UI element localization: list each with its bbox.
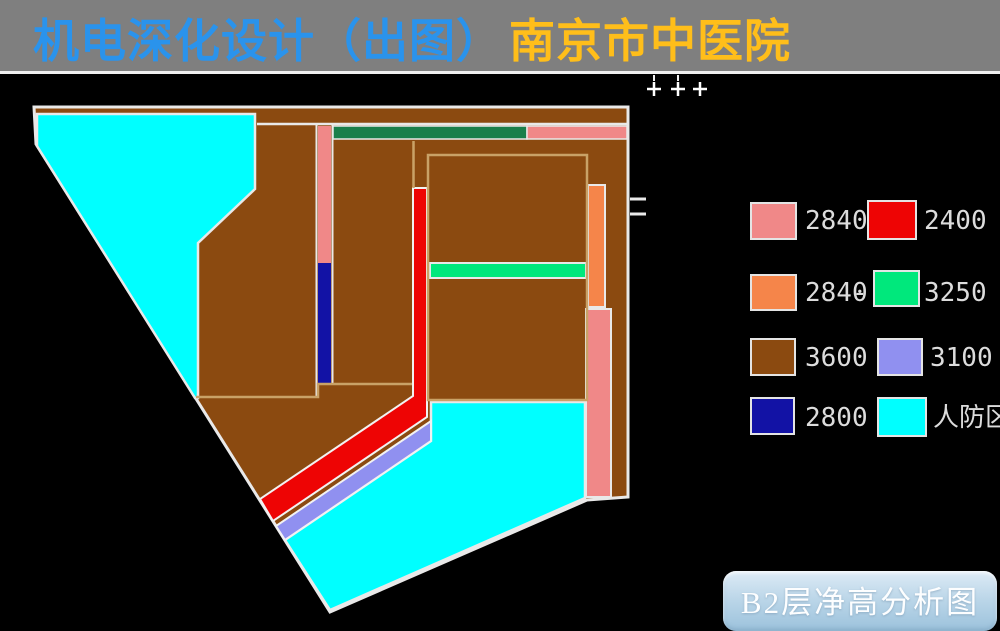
plus-marks [647,82,707,96]
floor-plan-canvas [0,0,1000,624]
region-navy-left-strip [318,263,331,383]
slide-title: 机电深化设计（出图）南京市中医院 [33,5,791,71]
region-pink-top-bar [527,126,627,139]
region-orange-right-strip [588,185,605,307]
region-dark-green-top-bar [333,126,527,139]
title-text-yellow: 南京市中医院 [509,15,791,67]
region-pink-left-strip [318,126,331,263]
caption-text: B2层净高分析图 [741,577,979,622]
title-text-blue: 机电深化设计（出图） [33,15,503,67]
title-bar: 机电深化设计（出图）南京市中医院 [0,0,1000,74]
caption-badge: B2层净高分析图 [723,571,997,631]
region-pink-right-strip [586,309,611,497]
region-spring-green-bar [430,263,586,278]
